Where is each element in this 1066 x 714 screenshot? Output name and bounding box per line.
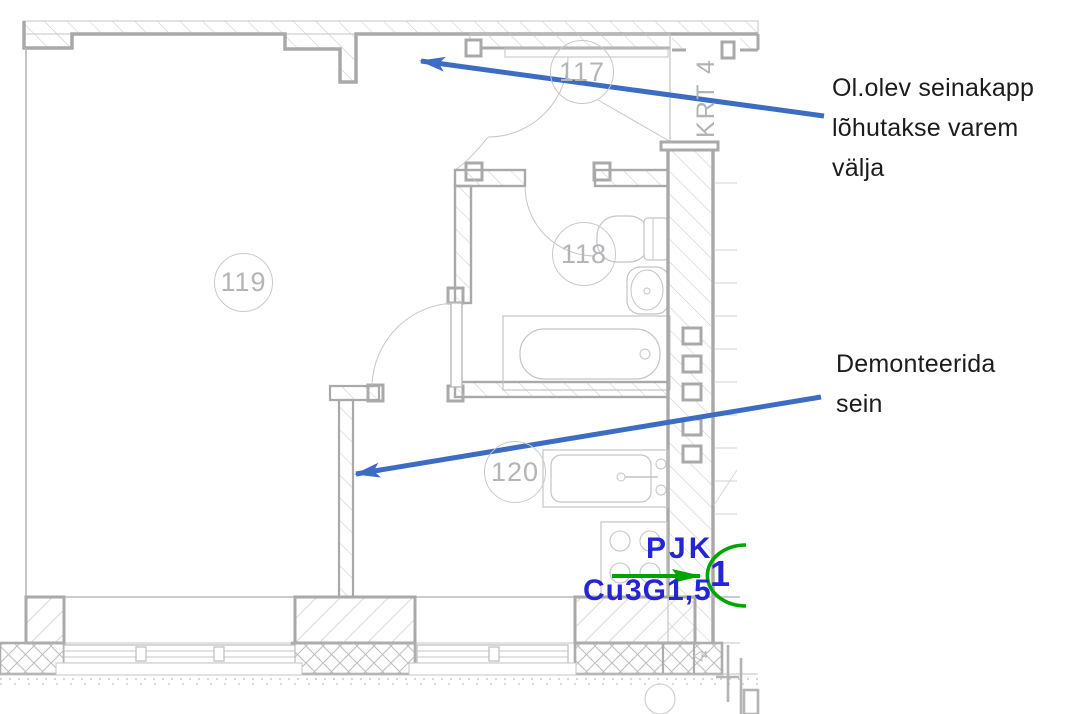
- note-wall-cabinet-line3: välja: [832, 148, 1034, 188]
- bathroom-west-door: [372, 303, 462, 388]
- note-wall-cabinet: Ol.olev seinakapp lõhutakse varem välja: [832, 68, 1034, 188]
- note-wall-cabinet-line2: lõhutakse varem: [832, 108, 1034, 148]
- annotation-arrow-demolish: [356, 397, 821, 474]
- kitchen-sink: [543, 450, 668, 507]
- corridor-label: KRT 4: [692, 39, 722, 157]
- ground-stipple: [0, 679, 760, 684]
- top-wall: [24, 21, 758, 82]
- room-label-117: 117: [550, 40, 614, 104]
- room-label-119: 119: [214, 253, 273, 312]
- bathroom-walls: [455, 170, 668, 397]
- note-demolish-wall-line1: Demonteerida: [836, 344, 995, 384]
- annotation-arrow-wall-cabinet: [421, 61, 824, 116]
- bathtub: [503, 316, 670, 390]
- demolish-wall: [330, 386, 379, 597]
- note-demolish-wall-line2: sein: [836, 384, 995, 424]
- floor-plan-page: 117 118 119 120 KRT 4 Ol.olev seinakapp …: [0, 0, 1066, 714]
- note-wall-cabinet-line1: Ol.olev seinakapp: [832, 68, 1034, 108]
- stair-ticks: [714, 183, 737, 514]
- note-demolish-wall: Demonteerida sein: [836, 344, 995, 424]
- room-label-118: 118: [552, 222, 616, 286]
- electrical-device-label: PJK: [646, 532, 713, 566]
- room-label-120: 120: [484, 441, 546, 503]
- dimension-mark: 4: [702, 650, 708, 661]
- circuit-number: 1: [710, 553, 730, 595]
- bathroom-sink: [627, 267, 669, 314]
- electrical-cable-label: Cu3G1,5: [583, 574, 712, 608]
